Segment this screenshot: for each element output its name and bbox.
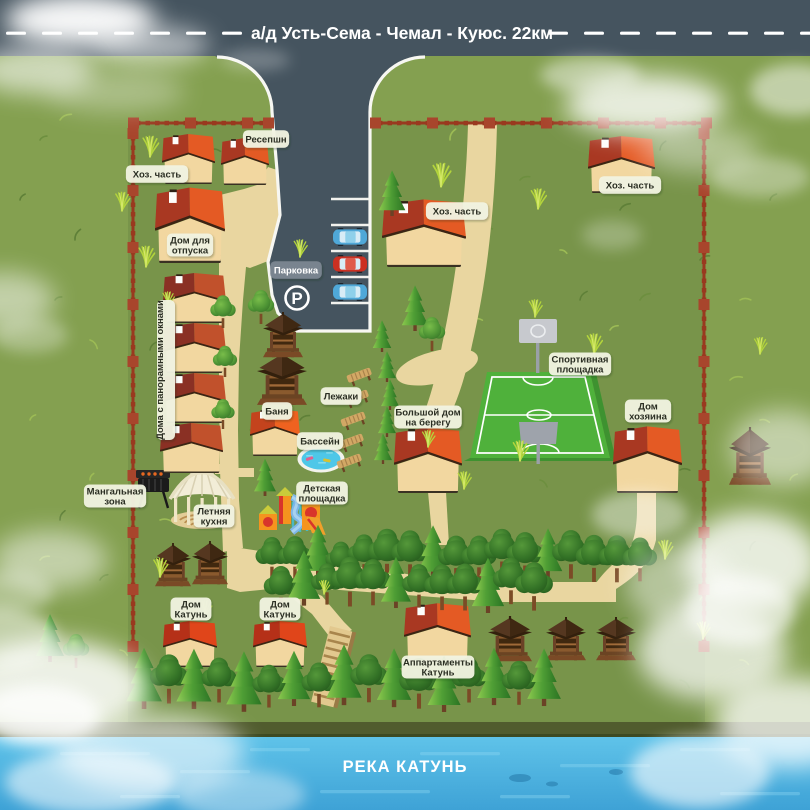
svg-text:Хоз. часть: Хоз. часть (606, 181, 655, 192)
svg-text:площадка: площадка (557, 365, 605, 376)
svg-text:Парковка: Парковка (274, 266, 319, 277)
svg-text:кухня: кухня (201, 517, 228, 528)
svg-text:Хоз. часть: Хоз. часть (433, 207, 482, 218)
svg-text:Катунь: Катунь (422, 668, 455, 679)
svg-text:а/д Усть-Сема - Чемал - Куюс.: а/д Усть-Сема - Чемал - Куюс. 22км (251, 23, 553, 43)
svg-text:Хоз. часть: Хоз. часть (133, 170, 182, 181)
svg-text:Баня: Баня (265, 407, 288, 418)
svg-text:Ресепшн: Ресепшн (245, 135, 286, 146)
svg-text:зона: зона (104, 497, 126, 508)
svg-text:площадка: площадка (299, 494, 347, 505)
svg-text:Дома с панорамными окнами: Дома с панорамными окнами (155, 300, 166, 440)
svg-text:P: P (291, 289, 302, 308)
svg-text:Лежаки: Лежаки (324, 392, 359, 403)
svg-text:хозяина: хозяина (629, 412, 668, 423)
svg-text:на берегу: на берегу (405, 418, 451, 429)
svg-text:РЕКА КАТУНЬ: РЕКА КАТУНЬ (343, 758, 468, 776)
svg-text:Катунь: Катунь (264, 610, 297, 621)
svg-text:Катунь: Катунь (175, 610, 208, 621)
svg-text:Бассейн: Бассейн (300, 437, 340, 448)
svg-text:отпуска: отпуска (172, 246, 209, 257)
